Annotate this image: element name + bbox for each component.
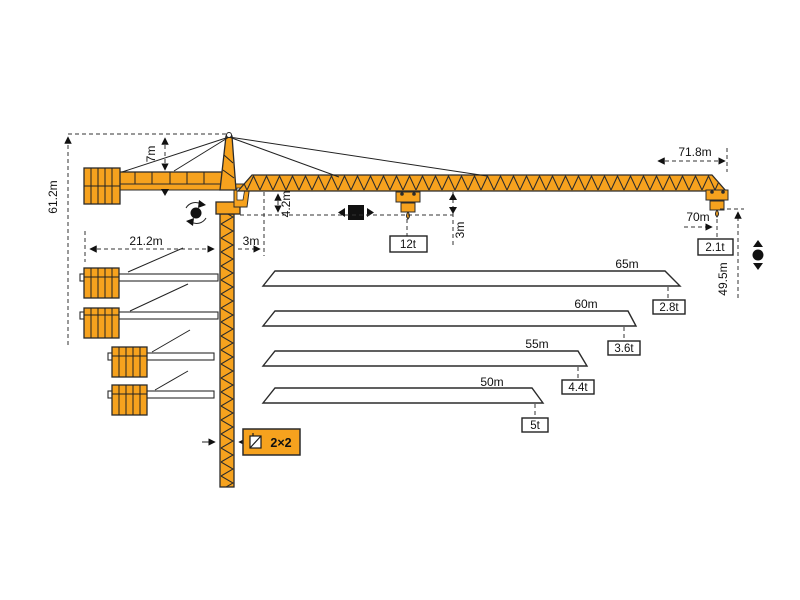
dim-jib-depth: 4.2m [278,191,293,218]
counterweight-block [84,268,119,298]
slewing-icon [186,200,206,226]
jib-option-row: 55m 4.4t [263,337,594,394]
pendant-line [229,137,339,177]
mast-section-label: 2×2 [270,436,291,450]
tip-load-label: 4.4t [568,382,588,394]
counterweight-block [112,385,147,415]
mast-section-badge: 2×2 [202,429,300,455]
apex-pin [227,133,232,138]
hook [716,210,719,217]
svg-text:70m: 70m [686,210,709,224]
pendant-line [229,137,487,176]
counterweight-row [80,248,218,298]
dim-tip-capacity: 2.1t [698,219,733,255]
jib-length-label: 60m [574,297,597,311]
counterweight-block [112,347,147,377]
pendant-line [174,137,229,171]
svg-text:7m: 7m [144,146,158,163]
jib-length-options: 65m 2.8t 60m 3.6t 55m 4.4t 50m 5t [263,257,685,432]
pendant-line [122,137,229,172]
jib-option-row: 65m 2.8t [263,257,685,314]
svg-text:4.2m: 4.2m [279,191,293,218]
jib-length-label: 50m [480,375,503,389]
svg-text:2.1t: 2.1t [705,242,725,254]
dim-total-height: 61.2m [46,180,60,213]
counterweight-options [80,248,218,415]
jib-option-row: 50m 5t [263,375,548,432]
main-jib [238,175,726,191]
dim-tip-radius: 70m [684,210,712,227]
counter-jib-counterweight [84,168,120,204]
svg-text:21.2m: 21.2m [129,234,162,248]
jib-option-row: 60m 3.6t [263,297,640,355]
dim-max-capacity: 12t [390,219,427,252]
svg-text:71.8m: 71.8m [678,145,711,159]
tip-load-label: 2.8t [659,302,679,314]
counterweight-block [84,308,119,338]
svg-text:49.5m: 49.5m [716,262,730,295]
dim-counter-radius: 21.2m [90,234,214,249]
tower-mast [216,202,240,487]
svg-text:12t: 12t [400,239,417,251]
hoisting-icon [753,240,764,270]
crane-diagram: 65m 2.8t 60m 3.6t 55m 4.4t 50m 5t [0,0,800,600]
tip-load-label: 5t [530,420,540,432]
counter-jib [84,168,222,204]
svg-text:3m: 3m [243,234,260,248]
tip-load-label: 3.6t [614,343,634,355]
counterweight-row [108,330,214,377]
dim-max-radius: 71.8m [658,145,727,172]
svg-text:61.2m: 61.2m [46,180,60,213]
svg-text:3m: 3m [453,222,467,239]
trolley-travel-icon [338,205,374,220]
jib-length-label: 65m [615,257,638,271]
jib-length-label: 55m [525,337,548,351]
